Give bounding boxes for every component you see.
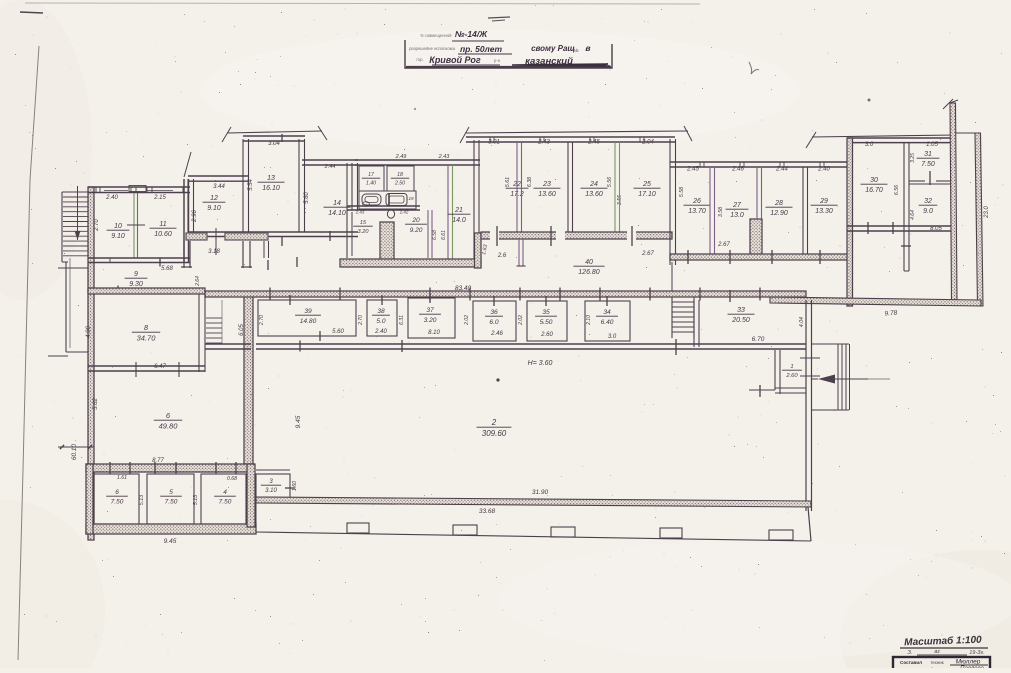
svg-text:0.68: 0.68 [227, 476, 237, 482]
svg-text:2.43: 2.43 [355, 210, 365, 215]
svg-text:5.68: 5.68 [161, 266, 173, 272]
svg-text:9.20: 9.20 [410, 227, 423, 234]
svg-text:31: 31 [924, 151, 932, 158]
svg-text:6.0: 6.0 [489, 319, 498, 326]
svg-text:9.45: 9.45 [295, 415, 302, 428]
svg-text:3.18: 3.18 [208, 249, 220, 255]
svg-text:5.13: 5.13 [139, 495, 145, 505]
svg-text:32: 32 [924, 198, 932, 205]
svg-text:9.78: 9.78 [884, 310, 897, 318]
svg-text:34: 34 [603, 309, 611, 316]
svg-text:3.0: 3.0 [865, 142, 874, 148]
svg-text:2.64: 2.64 [195, 276, 201, 287]
svg-text:40: 40 [585, 259, 593, 266]
svg-text:2.44: 2.44 [775, 167, 788, 173]
svg-text:6.31: 6.31 [399, 315, 405, 325]
svg-text:16.10: 16.10 [262, 185, 280, 192]
svg-text:2.96: 2.96 [192, 210, 198, 223]
svg-text:3.25: 3.25 [910, 153, 916, 163]
svg-text:8.77: 8.77 [152, 458, 164, 464]
svg-text:5.56: 5.56 [607, 177, 613, 187]
svg-text:2.67: 2.67 [717, 242, 730, 248]
svg-text:р-н: р-н [494, 58, 501, 63]
svg-text:24: 24 [589, 181, 598, 188]
svg-text:6.38: 6.38 [527, 177, 533, 187]
svg-text:8.10: 8.10 [428, 330, 440, 336]
svg-text:в: в [585, 43, 590, 53]
svg-text:пр. 50лет: пр. 50лет [460, 44, 502, 54]
svg-text:60.10: 60.10 [71, 443, 78, 460]
svg-text:11: 11 [159, 221, 166, 228]
svg-text:13.60: 13.60 [538, 191, 556, 198]
svg-text:2.15: 2.15 [153, 195, 166, 201]
svg-text:5.60: 5.60 [304, 192, 310, 204]
svg-text:N совмещенной: N совмещенной [420, 33, 452, 38]
svg-text:3.10: 3.10 [265, 488, 277, 494]
svg-text:28: 28 [774, 200, 783, 207]
svg-text:16.70: 16.70 [865, 187, 883, 194]
svg-text:6.58: 6.58 [432, 230, 438, 240]
svg-text:9.30: 9.30 [129, 281, 143, 288]
svg-text:5.58: 5.58 [679, 187, 685, 197]
svg-text:39: 39 [304, 308, 312, 315]
svg-text:2.02: 2.02 [464, 315, 470, 326]
svg-text:1.40: 1.40 [366, 180, 376, 186]
svg-text:H= 3.60: H= 3.60 [528, 360, 553, 367]
svg-text:3.01: 3.01 [488, 140, 500, 146]
svg-text:33: 33 [737, 307, 745, 314]
svg-text:13: 13 [267, 175, 275, 182]
svg-text:21: 21 [454, 207, 463, 214]
svg-text:7.50: 7.50 [165, 499, 178, 506]
svg-text:9: 9 [134, 271, 138, 278]
svg-text:2.70: 2.70 [358, 315, 364, 326]
svg-text:7.50: 7.50 [921, 161, 935, 168]
svg-text:6: 6 [115, 489, 119, 496]
svg-text:4.04: 4.04 [799, 317, 805, 327]
svg-text:2.70: 2.70 [259, 315, 265, 326]
svg-text:вз: вз [934, 649, 940, 655]
svg-text:4.64: 4.64 [910, 210, 916, 220]
svg-text:83.40: 83.40 [455, 285, 472, 292]
svg-text:Мюллер: Мюллер [956, 659, 981, 666]
svg-text:3.04: 3.04 [268, 141, 280, 147]
svg-text:Кривой Рог: Кривой Рог [429, 55, 481, 65]
svg-text:6.40: 6.40 [601, 319, 614, 326]
svg-text:23: 23 [542, 181, 551, 188]
svg-text:29: 29 [819, 198, 828, 205]
svg-text:126.80: 126.80 [578, 269, 600, 276]
svg-text:4.90: 4.90 [86, 326, 92, 338]
svg-text:13.70: 13.70 [688, 208, 706, 215]
svg-text:15: 15 [360, 220, 367, 226]
svg-text:6.56: 6.56 [894, 185, 900, 195]
svg-text:14.10: 14.10 [328, 210, 346, 217]
svg-text:2.40: 2.40 [374, 329, 387, 335]
svg-text:19: 19 [408, 196, 414, 201]
svg-text:20.50: 20.50 [731, 317, 750, 324]
svg-text:техник: техник [930, 660, 943, 665]
svg-text:35: 35 [542, 309, 550, 316]
svg-text:13.30: 13.30 [815, 208, 833, 215]
svg-text:разрешение исполкома: разрешение исполкома [409, 46, 455, 51]
svg-text:2.40: 2.40 [817, 167, 830, 173]
svg-text:2.46: 2.46 [731, 167, 744, 173]
svg-text:гор.: гор. [416, 57, 423, 62]
svg-text:3.20: 3.20 [424, 317, 437, 324]
svg-text:2.60: 2.60 [540, 332, 553, 338]
svg-text:309.60: 309.60 [482, 429, 507, 438]
svg-text:23.0: 23.0 [984, 206, 990, 219]
svg-text:19-Зг.: 19-Зг. [969, 650, 985, 656]
svg-text:38: 38 [377, 308, 385, 315]
svg-text:33.68: 33.68 [479, 508, 496, 515]
svg-text:3.20: 3.20 [358, 229, 370, 235]
svg-text:4: 4 [223, 489, 227, 496]
svg-text:2.44: 2.44 [324, 164, 336, 170]
svg-text:10.60: 10.60 [154, 231, 172, 238]
svg-text:6.70: 6.70 [752, 336, 765, 343]
svg-text:5.0: 5.0 [376, 318, 385, 325]
svg-text:1: 1 [790, 364, 793, 370]
svg-text:1.05: 1.05 [926, 142, 938, 148]
svg-text:2.6: 2.6 [497, 253, 507, 259]
svg-text:3.0: 3.0 [608, 334, 617, 340]
svg-text:№: № [573, 48, 578, 54]
svg-text:31.90: 31.90 [532, 489, 549, 496]
svg-text:26: 26 [692, 198, 701, 205]
svg-text:36: 36 [490, 309, 498, 316]
svg-text:2.04: 2.04 [641, 140, 654, 146]
svg-text:5.61: 5.61 [505, 177, 511, 187]
svg-text:1.61: 1.61 [117, 475, 127, 481]
svg-text:2.49: 2.49 [395, 154, 407, 160]
svg-text:5.62: 5.62 [93, 398, 99, 410]
svg-text:5.54: 5.54 [248, 179, 254, 191]
svg-text:12.90: 12.90 [770, 210, 788, 217]
svg-text:18: 18 [397, 172, 403, 178]
svg-text:2.70: 2.70 [94, 219, 100, 232]
svg-text:9.45: 9.45 [164, 538, 177, 545]
svg-text:3.58: 3.58 [718, 207, 724, 217]
svg-text:9.0: 9.0 [923, 208, 933, 215]
svg-text:№-14/Ж: №-14/Ж [455, 29, 488, 39]
svg-text:Составил: Составил [900, 660, 922, 665]
svg-text:34.70: 34.70 [137, 334, 157, 343]
svg-text:свому Ращ: свому Ращ [531, 44, 575, 53]
svg-text:3.44: 3.44 [213, 184, 225, 190]
svg-text:2.46: 2.46 [490, 331, 503, 337]
svg-text:13.0: 13.0 [730, 212, 744, 219]
svg-text:1.60: 1.60 [292, 481, 298, 491]
svg-text:37: 37 [426, 307, 434, 314]
svg-text:2.43: 2.43 [438, 154, 451, 160]
svg-text:2.67: 2.67 [641, 251, 654, 257]
svg-text:2: 2 [491, 418, 497, 427]
svg-text:6.47: 6.47 [154, 364, 166, 370]
svg-text:5.50: 5.50 [540, 319, 553, 326]
svg-text:5.13: 5.13 [193, 495, 199, 505]
svg-text:14: 14 [333, 200, 341, 207]
svg-text:З.: З. [908, 650, 913, 656]
svg-text:2.43: 2.43 [537, 140, 550, 146]
svg-text:14.80: 14.80 [300, 318, 317, 325]
svg-text:7.50: 7.50 [111, 499, 124, 506]
svg-text:7.50: 7.50 [219, 499, 232, 506]
svg-text:20: 20 [411, 217, 420, 224]
svg-text:2.50: 2.50 [394, 180, 405, 186]
svg-text:27: 27 [732, 202, 742, 209]
svg-text:12: 12 [210, 195, 218, 202]
svg-text:2.02: 2.02 [518, 315, 524, 326]
svg-text:5: 5 [169, 489, 173, 496]
svg-text:49.80: 49.80 [159, 422, 179, 431]
svg-text:6.61: 6.61 [441, 230, 447, 240]
svg-text:17.10: 17.10 [638, 191, 656, 198]
svg-text:10: 10 [114, 223, 122, 230]
svg-text:9.10: 9.10 [207, 205, 221, 212]
svg-text:5.60: 5.60 [332, 329, 344, 335]
svg-text:2.40: 2.40 [105, 195, 118, 201]
svg-text:2.45: 2.45 [686, 167, 699, 173]
svg-text:25: 25 [642, 181, 651, 188]
svg-text:2.45: 2.45 [587, 140, 600, 146]
svg-text:9.10: 9.10 [111, 233, 125, 240]
svg-text:14.0: 14.0 [452, 217, 466, 224]
svg-text:30: 30 [870, 177, 878, 184]
svg-text:2.10: 2.10 [586, 315, 592, 326]
svg-text:2.42: 2.42 [399, 210, 409, 215]
svg-text:13.60: 13.60 [585, 191, 603, 198]
svg-text:2.60: 2.60 [785, 373, 798, 379]
